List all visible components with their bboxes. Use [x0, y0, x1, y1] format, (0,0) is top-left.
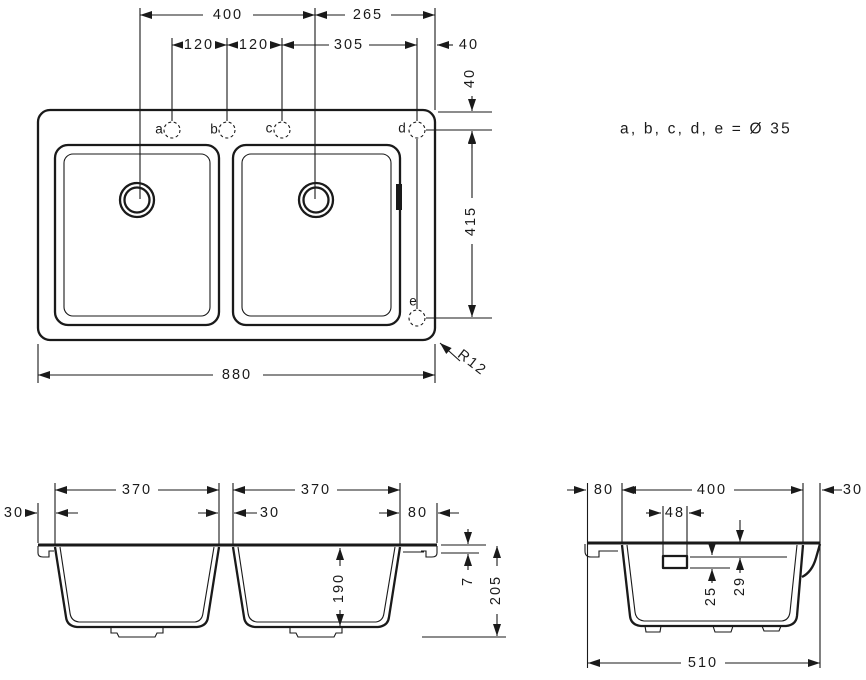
hole-a [164, 122, 180, 138]
hole-b [219, 122, 235, 138]
dim-30-back: 30 [843, 482, 863, 498]
dim-7-rim: 7 [460, 576, 476, 586]
sink-technical-drawing: a b c d e 400 2 [0, 0, 866, 675]
top-view-dimensions: 400 265 120 120 305 40 40 415 880 R12 [38, 7, 490, 383]
dim-30-left: 30 [4, 505, 24, 521]
dim-120-right: 120 [239, 37, 269, 53]
side-section-view: 80 400 30 48 25 29 510 [567, 482, 863, 671]
hole-e [409, 310, 425, 326]
dim-40-horizontal: 40 [459, 37, 479, 53]
dim-400-bowl: 400 [697, 482, 727, 498]
dim-30-divider: 30 [260, 505, 280, 521]
hole-b-label: b [210, 122, 218, 137]
front-section-view: 370 370 30 30 80 7 205 190 [4, 482, 506, 637]
hole-d [409, 122, 425, 138]
side-view-dimensions: 80 400 30 48 25 29 510 [567, 482, 863, 671]
hole-c-label: c [266, 121, 273, 136]
dim-880: 880 [222, 367, 252, 383]
front-view-dimensions: 370 370 30 30 80 7 205 190 [4, 482, 506, 636]
dim-top-265: 265 [353, 7, 383, 23]
faucet-holes: a b c d e [155, 121, 425, 327]
hole-a-label: a [155, 122, 163, 137]
dim-48-overflow: 48 [665, 505, 685, 521]
dim-370-left: 370 [122, 482, 152, 498]
front-view-outline [38, 545, 437, 637]
hole-e-label: e [409, 294, 417, 309]
dim-120-left: 120 [184, 37, 214, 53]
dim-415: 415 [463, 206, 479, 236]
top-view-extension-lines [38, 8, 492, 383]
drain-boss-left [111, 627, 163, 637]
overflow-slot-side-view [663, 556, 687, 568]
overflow-slot-top-view [396, 184, 402, 210]
top-view: a b c d e 400 2 [38, 7, 792, 383]
dim-top-400: 400 [213, 7, 243, 23]
hole-diameter-note: a, b, c, d, e = Ø 35 [620, 121, 792, 138]
side-view-extension-lines [588, 483, 821, 668]
top-view-outline [38, 110, 435, 340]
dim-80-ledge: 80 [408, 505, 428, 521]
sink-technical-drawing-page: a b c d e 400 2 [0, 0, 866, 675]
dim-80-front: 80 [594, 482, 614, 498]
dim-305: 305 [334, 37, 364, 53]
dim-25-overflow-height: 25 [703, 586, 719, 606]
dim-40-vertical: 40 [462, 68, 478, 88]
drain-boss-right [290, 627, 342, 637]
dim-205-height: 205 [488, 575, 504, 605]
dim-370-right: 370 [301, 482, 331, 498]
hole-c [274, 122, 290, 138]
dim-510-depth: 510 [688, 655, 718, 671]
dim-r12: R12 [454, 347, 490, 380]
dim-190-depth: 190 [331, 573, 347, 603]
hole-d-label: d [398, 121, 406, 136]
dim-29-overflow-top: 29 [732, 576, 748, 596]
